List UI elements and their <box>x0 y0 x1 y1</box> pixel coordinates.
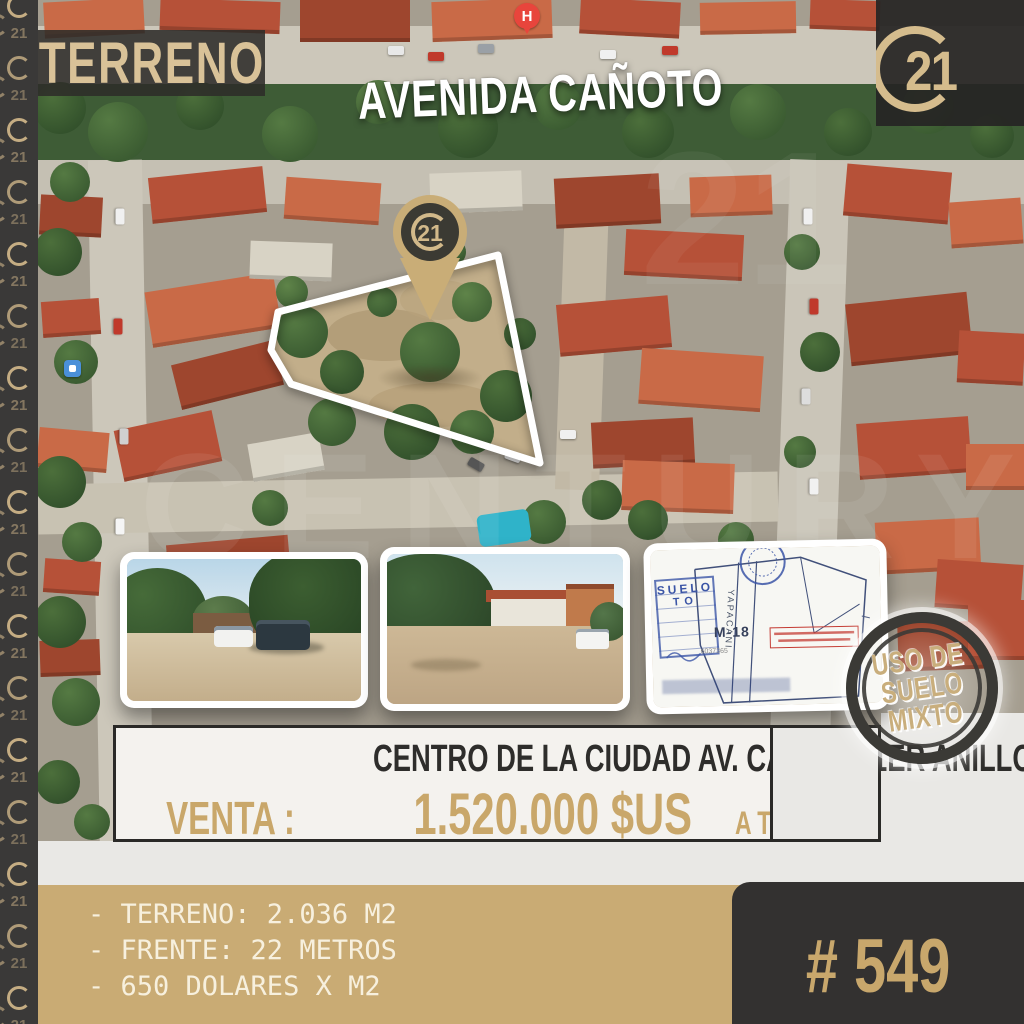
tree-shape <box>628 500 668 540</box>
tree-shape <box>252 490 288 526</box>
roof-shape <box>247 432 325 482</box>
c21-ring-icon <box>7 614 31 638</box>
car-shape <box>560 430 576 439</box>
roof-shape <box>845 292 973 366</box>
tree-shape <box>36 760 80 804</box>
hospital-marker-icon: H <box>514 3 540 29</box>
tree-shape <box>384 404 440 460</box>
listing-info-box: CENTRO DE LA CIUDAD AV. CAÑOTO 1ER ANILL… <box>113 725 773 842</box>
white-van <box>576 629 609 649</box>
site-photo-2 <box>380 547 630 711</box>
roof-shape <box>554 173 661 228</box>
c21-ring-icon <box>7 490 31 514</box>
car-shape <box>114 319 123 335</box>
roof-shape <box>579 0 681 39</box>
c21-ring-icon <box>7 738 31 762</box>
roof-shape <box>689 175 772 218</box>
c21-ring-icon <box>7 676 31 700</box>
c21-ring-icon <box>7 304 31 328</box>
tree-shape <box>52 678 100 726</box>
car-shape <box>428 52 444 61</box>
roof-shape <box>843 164 952 225</box>
pin-shadow <box>378 364 482 392</box>
roof-shape <box>809 0 880 31</box>
tree-shape <box>480 370 532 422</box>
c21-ring-icon <box>7 800 31 824</box>
plan-number: 6037365 <box>701 648 728 656</box>
listing-number-block: # 549 <box>732 882 1024 1024</box>
c21-ring-icon <box>7 366 31 390</box>
tree-shape <box>34 228 82 276</box>
tree-shape <box>308 398 356 446</box>
tree-shape <box>450 410 494 454</box>
transit-stop-icon <box>64 360 81 377</box>
detail-frontage: - FRENTE: 22 METROS <box>88 933 397 969</box>
tree-shape <box>784 234 820 270</box>
car-shape <box>120 429 129 445</box>
roof-shape <box>948 198 1023 249</box>
hospital-letter: H <box>522 8 533 25</box>
tree-shape <box>730 84 786 140</box>
tree-shape <box>800 332 840 372</box>
listing-number: # 549 <box>806 923 951 1010</box>
roof-shape <box>700 1 797 35</box>
roof-shape <box>556 295 672 357</box>
car-shape <box>662 46 678 55</box>
car-shape <box>116 519 125 535</box>
c21-ring-icon <box>7 862 31 886</box>
location-line: CENTRO DE LA CIUDAD AV. CAÑOTO 1ER ANILL… <box>116 738 758 781</box>
title-badge: TERRENO <box>38 30 265 96</box>
price-line: VENTA : 1.520.000 $US A TC 7 <box>116 781 758 848</box>
car-shape <box>478 44 494 53</box>
car-shape <box>802 389 811 405</box>
real-estate-flyer: CENTURY 21 21 H AVENIDA CAÑOTO - TERRENO… <box>0 0 1024 1024</box>
c21-ring-icon <box>7 56 31 80</box>
c21-map-pin-icon: 21 <box>390 194 470 326</box>
c21-ring-icon <box>7 428 31 452</box>
roof-shape <box>144 272 281 348</box>
tree-shape <box>784 436 816 468</box>
tree-shape <box>34 456 86 508</box>
roof-shape <box>624 229 744 281</box>
c21-pattern-strip: 2121212121212121212121212121212121 <box>0 0 38 1024</box>
car-shape <box>804 209 813 225</box>
c21-ring-icon <box>7 180 31 204</box>
property-details: - TERRENO: 2.036 M2 - FRENTE: 22 METROS … <box>88 897 397 1005</box>
plan-stamp-smudge <box>662 678 791 695</box>
empty-side-box <box>770 725 881 842</box>
c21-ring-icon <box>7 924 31 948</box>
tree-shape <box>50 162 90 202</box>
c21-ring-icon <box>7 0 31 18</box>
car-shape <box>467 457 485 473</box>
swimming-pool <box>476 509 532 548</box>
sale-label: VENTA : <box>166 791 295 845</box>
car-shape <box>600 50 616 59</box>
tree-shape <box>320 350 364 394</box>
c21-ring-icon <box>0 1006 8 1024</box>
tree-shape <box>582 480 622 520</box>
roof-shape <box>43 558 101 596</box>
roof-shape <box>284 177 382 226</box>
plan-blue-stamp: SUELO TO <box>654 576 719 659</box>
c21-number: 21 <box>905 38 956 103</box>
tree-shape <box>504 318 536 350</box>
tree-shape <box>824 108 872 156</box>
car-shape <box>810 299 819 315</box>
roof-shape <box>300 0 410 42</box>
pin-number: 21 <box>390 220 470 247</box>
c21-ring-icon <box>7 118 31 142</box>
car-shape <box>810 479 819 495</box>
car-shape <box>116 209 125 225</box>
dark-suv <box>256 620 310 650</box>
tree-shape <box>34 596 86 648</box>
white-suv <box>214 626 254 647</box>
roof-shape <box>957 330 1024 385</box>
c21-ring-icon <box>7 552 31 576</box>
roof-shape <box>171 340 284 410</box>
roof-shape <box>638 348 764 412</box>
car-shape <box>504 450 522 464</box>
tree-shape <box>62 522 102 562</box>
detail-price-per-m2: - 650 DOLARES X M2 <box>88 969 397 1005</box>
site-photo-1 <box>120 552 368 708</box>
century21-logo: 21 <box>876 0 1024 126</box>
c21-ring-icon <box>7 242 31 266</box>
detail-area: - TERRENO: 2.036 M2 <box>88 897 397 933</box>
tree-shape <box>276 276 308 308</box>
car-shape <box>388 46 404 55</box>
roof-shape <box>41 298 101 338</box>
roof-shape <box>856 416 972 480</box>
price-value: 1.520.000 $US <box>414 781 693 848</box>
c21-ring-icon <box>7 986 31 1010</box>
roof-shape <box>966 444 1024 490</box>
tree-shape <box>74 804 110 840</box>
tree-shape <box>88 102 148 162</box>
tree-shape <box>276 306 328 358</box>
